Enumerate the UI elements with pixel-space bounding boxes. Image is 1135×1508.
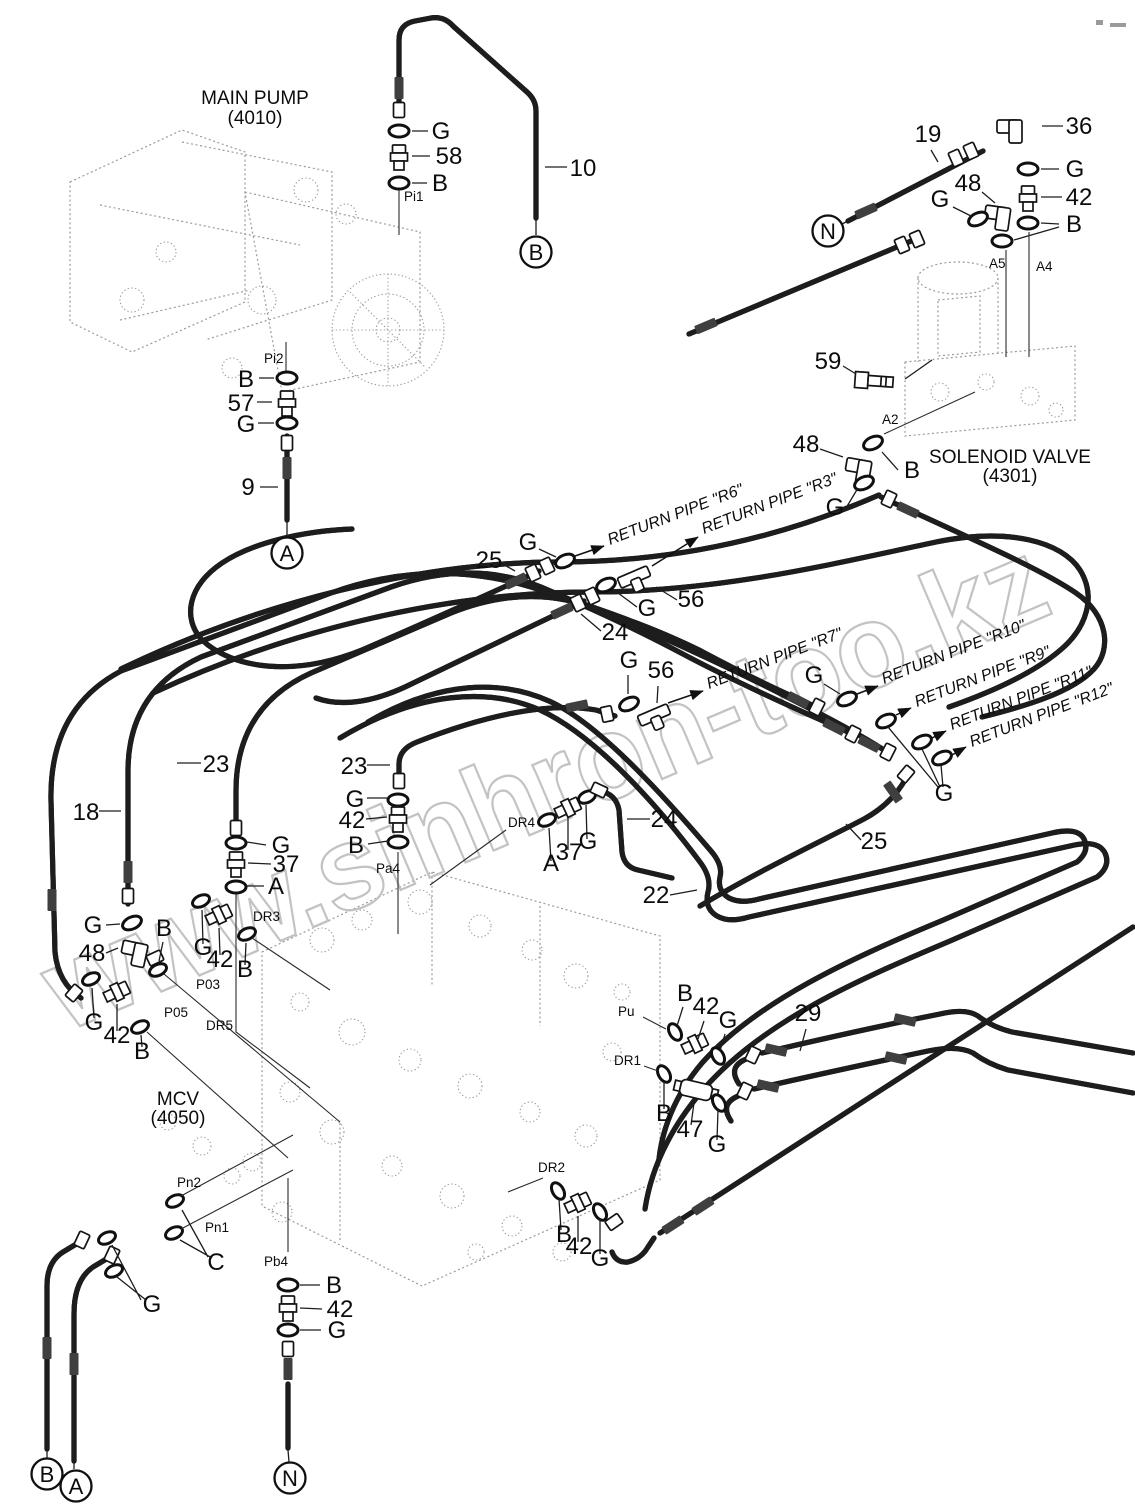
oring-g bbox=[226, 837, 246, 849]
oring-b-pu bbox=[666, 1021, 685, 1042]
oring-g bbox=[1018, 163, 1038, 175]
nipple-42 bbox=[563, 1190, 593, 1216]
part-label-36: 36 bbox=[1066, 113, 1093, 140]
terminal-n-bottom: N bbox=[275, 1463, 306, 1494]
seal-label-g: G bbox=[143, 1291, 162, 1318]
pipe-core bbox=[74, 1258, 108, 1461]
part-label-48: 48 bbox=[79, 940, 106, 967]
oring-pn1 bbox=[164, 1224, 185, 1242]
port-label-pi1: Pi1 bbox=[404, 189, 424, 204]
oring-g bbox=[709, 1045, 728, 1066]
hose-nut bbox=[600, 706, 614, 723]
port-label-p03: P03 bbox=[196, 977, 220, 992]
pipe-10 bbox=[399, 18, 536, 218]
crimp-sleeve bbox=[284, 1358, 293, 1380]
oring-g-r11 bbox=[910, 732, 933, 751]
oring-b bbox=[992, 235, 1012, 247]
crimp-sleeve bbox=[694, 318, 718, 335]
hose-nut bbox=[897, 765, 915, 784]
arrow-r9 bbox=[896, 708, 911, 715]
seal-label-b: B bbox=[432, 170, 448, 197]
seal-label-a: A bbox=[268, 873, 284, 900]
part-label-23: 23 bbox=[341, 753, 368, 780]
part-label-18: 18 bbox=[73, 799, 100, 826]
oring-g bbox=[389, 125, 409, 137]
oring-b bbox=[388, 836, 408, 848]
part-label-42: 42 bbox=[693, 993, 720, 1020]
terminal-n-label: N bbox=[282, 1466, 298, 1491]
part-label-48: 48 bbox=[793, 431, 820, 458]
hose-nut bbox=[880, 743, 897, 761]
seal-label-g: G bbox=[935, 780, 954, 807]
piping-diagram-page: www.sinhron-too.kz bbox=[0, 0, 1135, 1508]
oring-b-dr2 bbox=[549, 1180, 568, 1201]
mcv-name: MCV bbox=[157, 1089, 200, 1110]
port-label-pb4: Pb4 bbox=[264, 1254, 289, 1269]
seal-label-g: G bbox=[579, 828, 598, 855]
crimp-sleeve bbox=[896, 501, 920, 518]
port-label-pn1: Pn1 bbox=[205, 1220, 229, 1235]
crimp-sleeve bbox=[550, 602, 574, 619]
corner-mark bbox=[1096, 20, 1126, 27]
hose-nut bbox=[74, 1231, 90, 1249]
oring-g-r12 bbox=[930, 748, 953, 767]
hose-nut bbox=[283, 1342, 294, 1357]
solenoid-valve-code: (4301) bbox=[983, 466, 1038, 487]
terminal-a-bottom: A bbox=[61, 1471, 92, 1502]
port-label-pi2: Pi2 bbox=[264, 351, 284, 366]
crimp-sleeve bbox=[43, 1337, 52, 1359]
oring-g bbox=[966, 209, 989, 228]
crimp-sleeve bbox=[70, 1353, 79, 1375]
seal-label-b: B bbox=[238, 366, 254, 393]
crimp-sleeve bbox=[124, 861, 133, 883]
crimp-sleeve bbox=[48, 889, 57, 911]
oring-g bbox=[97, 1229, 118, 1247]
hose-nut bbox=[894, 236, 910, 254]
part-label-42: 42 bbox=[104, 1022, 131, 1049]
part-label-24: 24 bbox=[651, 806, 678, 833]
part-label-25: 25 bbox=[861, 828, 888, 855]
part-label-56: 56 bbox=[648, 657, 675, 684]
crimp-sleeve bbox=[283, 457, 292, 479]
seal-label-g: G bbox=[708, 1131, 727, 1158]
seal-label-b: B bbox=[348, 832, 364, 859]
main-pump-name: MAIN PUMP bbox=[201, 88, 309, 109]
seal-label-g: G bbox=[328, 1317, 347, 1344]
nipple-57 bbox=[279, 391, 296, 416]
crimp-sleeve bbox=[854, 202, 878, 219]
oring-b bbox=[389, 177, 409, 189]
seal-label-g: G bbox=[719, 1007, 738, 1034]
part-label-9: 9 bbox=[241, 474, 254, 501]
seal-label-g: G bbox=[519, 529, 538, 556]
oring-g bbox=[388, 794, 408, 806]
part-label-59: 59 bbox=[815, 348, 842, 375]
elbow-36 bbox=[997, 120, 1022, 143]
pipe-core bbox=[689, 239, 916, 334]
oring-g bbox=[104, 1262, 125, 1280]
seal-label-b: B bbox=[156, 915, 172, 942]
oring-a2-b bbox=[861, 433, 884, 452]
part-label-24: 24 bbox=[602, 619, 629, 646]
nipple-42 bbox=[280, 1296, 297, 1321]
oring-b-dr1 bbox=[655, 1063, 674, 1084]
seal-label-c: C bbox=[207, 1249, 224, 1276]
port-label-a4: A4 bbox=[1036, 259, 1053, 274]
oring-g bbox=[278, 1324, 298, 1336]
pipe-core bbox=[399, 18, 536, 218]
oring-g-r6 bbox=[553, 551, 576, 570]
seal-label-b: B bbox=[904, 457, 920, 484]
seal-label-g: G bbox=[826, 494, 845, 521]
terminal-b-bottom: B bbox=[32, 1459, 63, 1490]
hose-nut bbox=[948, 149, 964, 167]
oring-g bbox=[277, 417, 297, 429]
port-label-pu: Pu bbox=[618, 1004, 635, 1019]
seal-label-g: G bbox=[272, 832, 291, 859]
seal-label-g: G bbox=[638, 595, 657, 622]
crimp-sleeve bbox=[661, 1215, 684, 1235]
part-label-47: 47 bbox=[677, 1116, 704, 1143]
seal-label-g: G bbox=[237, 411, 256, 438]
seal-label-g: G bbox=[85, 1009, 104, 1036]
seal-label-g: G bbox=[84, 912, 103, 939]
part-label-25: 25 bbox=[476, 547, 503, 574]
crimp-sleeve bbox=[691, 1196, 714, 1216]
part-label-29: 29 bbox=[795, 1000, 822, 1027]
main-pump-ghost bbox=[70, 130, 444, 392]
seal-label-b: B bbox=[677, 980, 693, 1007]
nipple-58 bbox=[391, 145, 408, 170]
part-label-56: 56 bbox=[678, 586, 705, 613]
terminal-a-label: A bbox=[69, 1474, 84, 1499]
crimp-sleeve bbox=[395, 77, 404, 99]
part-label-42: 42 bbox=[1066, 184, 1093, 211]
seal-label-g: G bbox=[432, 118, 451, 145]
seal-label-b: B bbox=[656, 1100, 672, 1127]
bolt-59 bbox=[854, 372, 893, 391]
part-label-22: 22 bbox=[643, 882, 670, 909]
seal-label-g: G bbox=[591, 1245, 610, 1272]
part-label-58: 58 bbox=[436, 143, 463, 170]
seal-label-b: B bbox=[134, 1038, 150, 1065]
seal-label-b: B bbox=[1066, 211, 1082, 238]
seal-label-g: G bbox=[194, 934, 213, 961]
main-pump-code: (4010) bbox=[228, 108, 283, 129]
crimp-sleeve bbox=[857, 735, 881, 753]
part-label-23: 23 bbox=[203, 751, 230, 778]
part-label-10: 10 bbox=[570, 155, 597, 182]
hose-nut bbox=[282, 436, 293, 451]
terminal-n-top: N bbox=[813, 216, 844, 247]
terminal-b-label: B bbox=[529, 240, 544, 265]
port-label-pn2: Pn2 bbox=[177, 1175, 201, 1190]
seal-label-g: G bbox=[805, 662, 824, 689]
part-label-48: 48 bbox=[955, 170, 982, 197]
seal-label-a: A bbox=[543, 850, 559, 877]
port-label-a5: A5 bbox=[989, 256, 1006, 271]
oring-a bbox=[226, 881, 246, 893]
port-label-dr1: DR1 bbox=[614, 1053, 641, 1068]
seal-label-b: B bbox=[237, 956, 253, 983]
arrow-r11 bbox=[932, 731, 946, 738]
terminal-a-top: A bbox=[272, 538, 303, 569]
oring-b bbox=[278, 1279, 298, 1291]
port-label-a2: A2 bbox=[882, 412, 899, 427]
seal-label-g: G bbox=[346, 786, 365, 813]
seal-label-g: G bbox=[620, 647, 639, 674]
oring-b bbox=[277, 372, 297, 384]
oring-b bbox=[1018, 217, 1038, 229]
part-label-19: 19 bbox=[915, 121, 942, 148]
port-label-dr4: DR4 bbox=[508, 815, 535, 830]
port-label-dr2: DR2 bbox=[538, 1160, 565, 1175]
arrow-r6 bbox=[575, 546, 604, 556]
terminal-b-label: B bbox=[40, 1462, 55, 1487]
port-label-dr5: DR5 bbox=[206, 1018, 233, 1033]
solenoid-valve-name: SOLENOID VALVE bbox=[929, 447, 1091, 468]
hose-nut bbox=[394, 774, 405, 789]
terminal-a-label: A bbox=[280, 541, 295, 566]
crimp-sleeve bbox=[756, 1079, 779, 1093]
seal-label-b: B bbox=[556, 1221, 572, 1248]
arrow-r12 bbox=[952, 747, 966, 755]
hose-nut bbox=[123, 889, 134, 904]
port-label-pa4: Pa4 bbox=[376, 861, 401, 876]
piping-diagram: www.sinhron-too.kz bbox=[0, 0, 1135, 1508]
terminal-n-label: N bbox=[820, 219, 836, 244]
port-label-p05: P05 bbox=[164, 1005, 188, 1020]
hose-nut bbox=[231, 821, 242, 836]
seal-label-g: G bbox=[931, 186, 950, 213]
seal-label-b: B bbox=[326, 1272, 342, 1299]
crimp-sleeve bbox=[884, 1051, 907, 1065]
hose-nut bbox=[394, 103, 405, 118]
seal-label-g: G bbox=[1066, 156, 1085, 183]
hose-nut bbox=[909, 230, 925, 248]
solenoid-valve-ghost bbox=[905, 262, 1075, 436]
oring-g bbox=[710, 1092, 729, 1113]
port-label-dr3: DR3 bbox=[253, 909, 280, 924]
nipple-42 bbox=[1020, 186, 1037, 211]
terminal-b-top: B bbox=[521, 237, 552, 268]
nipple-42 bbox=[680, 1031, 710, 1057]
mcv-code: (4050) bbox=[151, 1108, 206, 1129]
